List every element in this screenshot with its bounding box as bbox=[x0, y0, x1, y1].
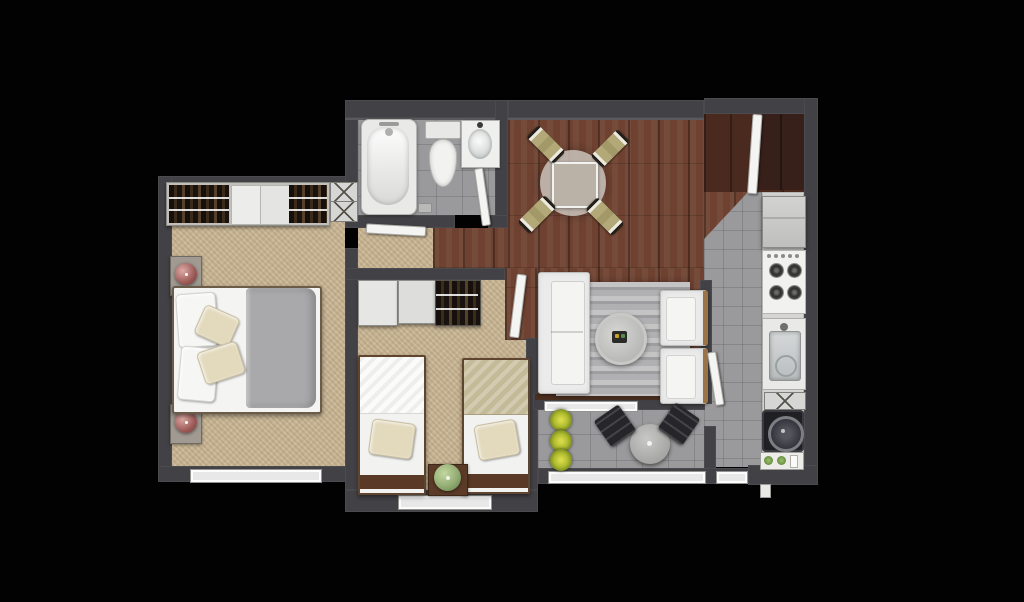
bed-blanket-white bbox=[360, 357, 424, 414]
sofa-cushions bbox=[551, 281, 585, 385]
wardrobe-rail bbox=[289, 209, 327, 211]
bed-footboard bbox=[464, 474, 528, 488]
wardrobe-rail bbox=[289, 197, 327, 199]
kitchen-window bbox=[716, 471, 748, 484]
plant-cabinet bbox=[760, 452, 804, 470]
terrace-plant bbox=[550, 409, 572, 431]
wall-right bbox=[804, 98, 818, 485]
single-bed-right bbox=[462, 358, 530, 494]
wall-bedroom2-top bbox=[345, 268, 505, 280]
sink-faucet bbox=[477, 122, 483, 128]
kitchen-sink-unit bbox=[762, 318, 806, 390]
stove-burner bbox=[787, 263, 802, 278]
exterior-tap bbox=[760, 484, 771, 498]
wall-terrace-post bbox=[704, 426, 716, 474]
stove-burner bbox=[769, 285, 784, 300]
hanging-clothes bbox=[289, 185, 327, 223]
floor-drain bbox=[418, 203, 432, 213]
wardrobe-rail bbox=[169, 209, 229, 211]
shoe-cabinet bbox=[330, 201, 358, 222]
sofa-seam bbox=[551, 331, 583, 333]
table-lamp bbox=[175, 411, 197, 433]
bed-pillow bbox=[473, 419, 521, 462]
bedroom2-clothes-rack bbox=[435, 280, 481, 326]
dining-table-top bbox=[552, 162, 598, 208]
bedroom2-shelf bbox=[398, 280, 436, 324]
wall-dining-top bbox=[508, 100, 704, 120]
washer-drum bbox=[768, 416, 804, 452]
wardrobe-rail bbox=[169, 197, 229, 199]
wall-master-right bbox=[345, 248, 358, 490]
kitchen-shelf bbox=[764, 392, 806, 410]
toilet-tank bbox=[425, 121, 461, 139]
terrace-plant bbox=[550, 449, 572, 471]
green-lamp bbox=[434, 464, 461, 491]
stove-knob bbox=[795, 254, 799, 258]
plant-small bbox=[764, 456, 773, 465]
bottle bbox=[790, 455, 798, 468]
wall-bathroom-bottom-stub bbox=[488, 215, 508, 228]
table-lamp bbox=[175, 263, 197, 285]
stove-knob bbox=[781, 254, 785, 258]
plant-small bbox=[777, 456, 786, 465]
bathtub-faucet bbox=[379, 122, 399, 126]
washing-machine bbox=[762, 410, 804, 452]
bathtub bbox=[361, 119, 417, 215]
armchair-cushion bbox=[666, 297, 696, 341]
bed-blanket bbox=[246, 288, 316, 408]
terrace-table-center bbox=[647, 441, 652, 446]
entry-recess-floor bbox=[756, 112, 804, 190]
wardrobe-rail bbox=[436, 294, 478, 296]
fridge-seam bbox=[763, 217, 805, 219]
stove-burner bbox=[787, 285, 802, 300]
bedroom2-window bbox=[398, 495, 492, 510]
double-bed bbox=[172, 286, 322, 414]
kitchen-faucet bbox=[780, 323, 788, 331]
hanging-clothes bbox=[169, 185, 229, 223]
wardrobe-rail bbox=[436, 308, 478, 310]
stove bbox=[762, 250, 806, 314]
bed-footboard bbox=[360, 475, 424, 489]
bed-pillow bbox=[368, 418, 417, 460]
stove-burner bbox=[769, 263, 784, 278]
wall-entry-top bbox=[704, 98, 818, 114]
tray-item bbox=[621, 334, 625, 338]
wardrobe-shelf bbox=[260, 185, 290, 225]
wall-bathroom-top bbox=[345, 100, 508, 120]
sink-basin bbox=[468, 129, 492, 159]
master-wardrobe bbox=[166, 182, 330, 226]
coffee-table bbox=[595, 313, 647, 365]
bathroom-sink bbox=[461, 120, 500, 168]
stove-knob bbox=[788, 254, 792, 258]
bathtub-drain bbox=[385, 128, 393, 136]
wardrobe-shelf bbox=[231, 185, 261, 225]
corridor-floor bbox=[433, 228, 508, 268]
armchair bbox=[660, 290, 708, 346]
shoe-cabinet bbox=[330, 182, 358, 202]
stove-knob bbox=[767, 254, 771, 258]
floor-plan-canvas bbox=[0, 0, 1024, 602]
tray-item bbox=[615, 334, 619, 338]
armchair-cushion bbox=[666, 355, 696, 399]
sofa bbox=[538, 272, 590, 394]
armchair bbox=[660, 348, 708, 404]
refrigerator bbox=[762, 196, 806, 248]
washer-center bbox=[781, 429, 785, 433]
stove-knob bbox=[774, 254, 778, 258]
master-window bbox=[190, 469, 322, 483]
bed-blanket-olive bbox=[464, 360, 528, 415]
bathtub-basin bbox=[367, 127, 409, 205]
single-bed-left bbox=[358, 355, 426, 495]
terrace-glazing bbox=[548, 471, 706, 484]
kitchen-sink-drain bbox=[775, 355, 797, 377]
bedroom2-shelf bbox=[358, 280, 398, 326]
